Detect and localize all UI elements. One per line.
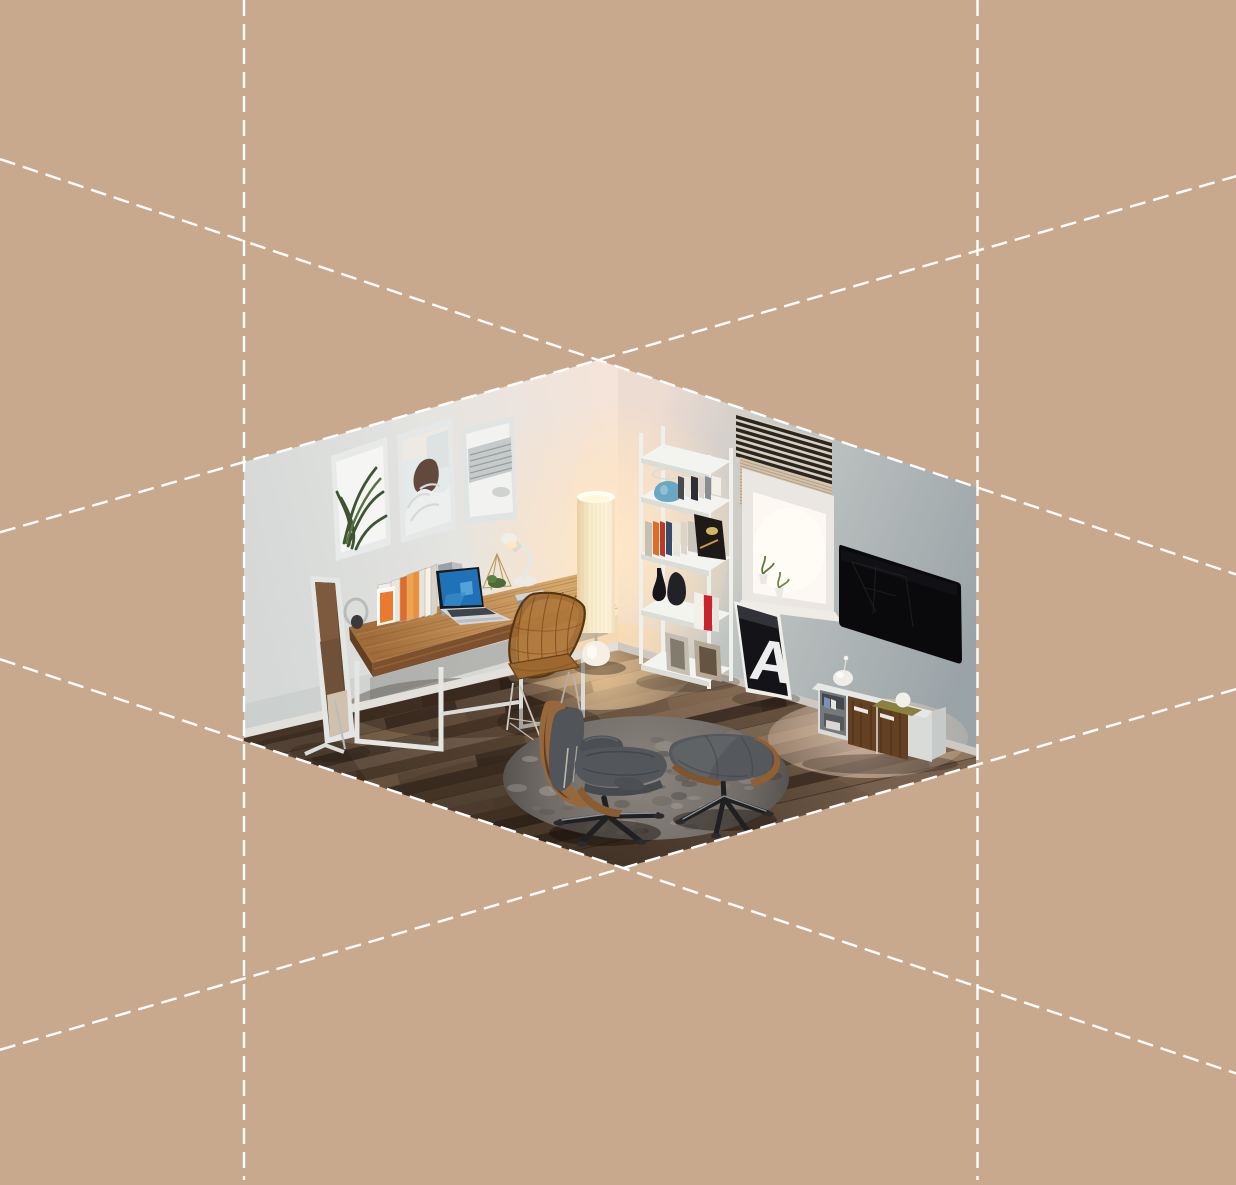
svg-text:A: A: [746, 627, 797, 697]
